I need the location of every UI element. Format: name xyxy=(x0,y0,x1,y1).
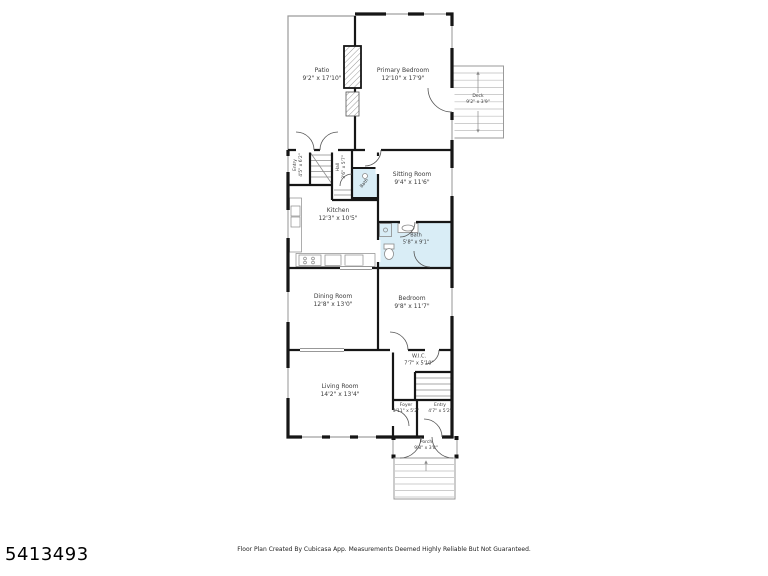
room-label-entry: Entry 4'7" x 5'2" xyxy=(428,403,452,415)
room-dims: 9'2" x 17'10" xyxy=(302,75,341,83)
room-name: Primary Bedroom xyxy=(377,67,429,75)
room-dims: 12'10" x 17'9" xyxy=(377,75,429,83)
room-name: Dining Room xyxy=(313,293,352,301)
room-label-foyer: Foyer 3'11" x 5'2" xyxy=(393,403,419,415)
room-label-wic: W.I.C. 7'7" x 5'10" xyxy=(404,354,433,367)
room-label-bath: Bath 5'8" x 9'1" xyxy=(403,233,429,246)
floor-plan-drawing xyxy=(0,0,768,576)
room-dims: 9'8" x 3'8" xyxy=(414,446,438,452)
room-dims: 9'4" x 11'6" xyxy=(393,179,431,187)
room-label-porch: Porch 9'8" x 3'8" xyxy=(414,440,438,452)
room-label-hall: Hall 3'6" x 5'7" xyxy=(336,155,348,179)
listing-number: 5413493 xyxy=(5,544,89,565)
chimney xyxy=(344,46,361,116)
room-dims: 4'5" x 6'2" xyxy=(299,153,305,177)
room-dims: 5'8" x 9'1" xyxy=(403,239,429,246)
room-label-bedroom: Bedroom 9'8" x 11'7" xyxy=(394,295,429,311)
room-dims: 14'2" x 13'4" xyxy=(320,391,359,399)
room-dims: 7'7" x 5'10" xyxy=(404,360,433,367)
room-label-dining-room: Dining Room 12'8" x 13'0" xyxy=(313,293,352,309)
room-dims: 12'8" x 13'0" xyxy=(313,301,352,309)
room-dims: 9'8" x 11'7" xyxy=(394,303,429,311)
room-label-kitchen: Kitchen 12'3" x 10'5" xyxy=(318,207,357,223)
room-label-living-room: Living Room 14'2" x 13'4" xyxy=(320,383,359,399)
room-name: Living Room xyxy=(320,383,359,391)
room-label-primary-bedroom: Primary Bedroom 12'10" x 17'9" xyxy=(377,67,429,83)
room-dims: 3'11" x 5'2" xyxy=(393,409,419,415)
room-dims: 4'7" x 5'2" xyxy=(428,409,452,415)
room-name: Kitchen xyxy=(318,207,357,215)
room-dims: 9'2" x 3'9" xyxy=(466,100,490,106)
room-name: Patio xyxy=(302,67,341,75)
room-label-back-entry: Entry 4'5" x 6'2" xyxy=(293,153,305,177)
room-label-sitting-room: Sitting Room 9'4" x 11'6" xyxy=(393,171,431,187)
floor-plan-page: Patio 9'2" x 17'10" Primary Bedroom 12'1… xyxy=(0,0,768,576)
room-dims: 12'3" x 10'5" xyxy=(318,215,357,223)
room-label-deck: Deck 9'2" x 3'9" xyxy=(466,94,490,106)
room-name: Bedroom xyxy=(394,295,429,303)
interior-stairs xyxy=(415,378,452,396)
room-dims: 3'6" x 5'7" xyxy=(342,155,348,179)
room-label-patio: Patio 9'2" x 17'10" xyxy=(302,67,341,83)
disclaimer-text: Floor Plan Created By Cubicasa App. Meas… xyxy=(0,546,768,553)
front-steps xyxy=(394,458,455,499)
room-name: Sitting Room xyxy=(393,171,431,179)
